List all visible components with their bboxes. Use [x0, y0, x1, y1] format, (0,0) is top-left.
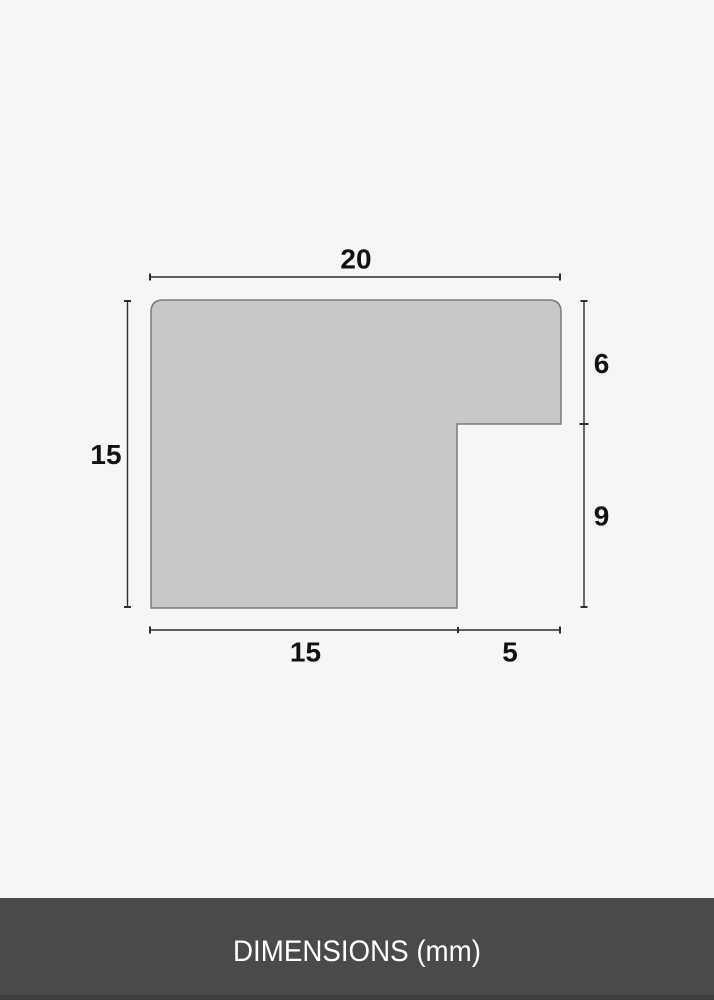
svg-text:6: 6: [594, 348, 610, 379]
svg-text:15: 15: [90, 439, 121, 470]
svg-text:20: 20: [340, 244, 371, 275]
svg-text:15: 15: [290, 637, 321, 668]
svg-text:DIMENSIONS (mm): DIMENSIONS (mm): [233, 935, 481, 968]
svg-text:9: 9: [594, 501, 610, 532]
svg-text:5: 5: [502, 637, 518, 668]
